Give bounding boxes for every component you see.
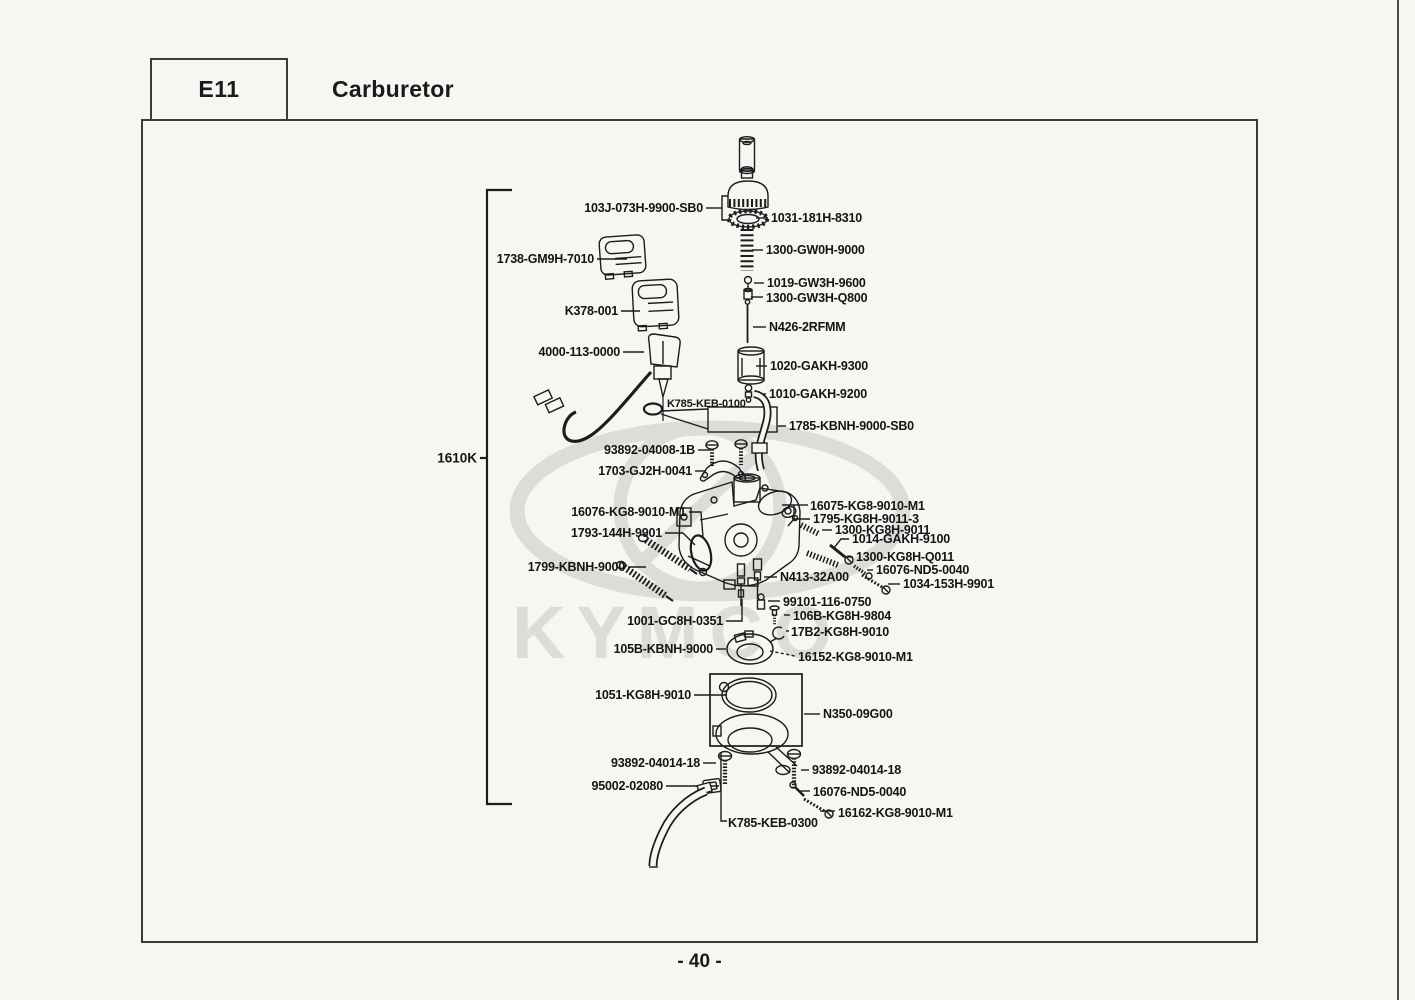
part-label-1793-144h-9901: 1793-144H-9901 bbox=[571, 526, 662, 540]
part-label-16076-nd5-0040-upper: 16076-ND5-0040 bbox=[876, 563, 969, 577]
part-drawing-needle-seat bbox=[744, 289, 752, 300]
part-label-k785-keb-0100: K785-KEB-0100 bbox=[667, 398, 746, 410]
manual-page: E11 Carburetor KYMCO bbox=[0, 0, 1415, 1000]
part-label-1300-gw3h-q800: 1300-GW3H-Q800 bbox=[766, 291, 868, 305]
part-label-16075-kg8-9010-m1: 16075-KG8-9010-M1 bbox=[810, 499, 925, 513]
part-label-1051-kg8h-9010: 1051-KG8H-9010 bbox=[595, 688, 691, 702]
part-label-1034-153h-9901: 1034-153H-9901 bbox=[903, 577, 994, 591]
part-label-93892-04014-18-left: 93892-04014-18 bbox=[611, 756, 700, 770]
part-label-1300-gw0h-9000: 1300-GW0H-9000 bbox=[766, 243, 865, 257]
part-drawing-drain-hose bbox=[649, 782, 712, 867]
part-label-k785-keb-0300: K785-KEB-0300 bbox=[728, 816, 818, 830]
part-label-1300-kg8h-q011: 1300-KG8H-Q011 bbox=[856, 550, 954, 564]
part-label-17b2-kg8h-9010: 17B2-KG8H-9010 bbox=[791, 625, 889, 639]
group-label-1610k: 1610K bbox=[437, 451, 477, 466]
part-label-1785-kbnh-9000-sb0: 1785-KBNH-9000-SB0 bbox=[789, 419, 914, 433]
part-drawing-rubber-boot-upper bbox=[599, 234, 647, 279]
part-label-4000-113-0000: 4000-113-0000 bbox=[538, 345, 620, 359]
part-label-1031-181h-8310: 1031-181H-8310 bbox=[771, 211, 862, 225]
part-label-16162-kg8-9010-m1: 16162-KG8-9010-M1 bbox=[838, 806, 953, 820]
part-label-99101-116-0750: 99101-116-0750 bbox=[783, 595, 872, 609]
part-label-93892-04008-1b: 93892-04008-1B bbox=[604, 443, 695, 457]
part-label-1738-gm9h-7010: 1738-GM9H-7010 bbox=[497, 252, 595, 266]
part-label-105b-kbnh-9000: 105B-KBNH-9000 bbox=[614, 642, 714, 656]
part-drawing-throttle-slide bbox=[738, 347, 764, 384]
part-label-1020-gakh-9300: 1020-GAKH-9300 bbox=[770, 359, 868, 373]
part-label-106b-kg8h-9804: 106B-KG8H-9804 bbox=[793, 609, 891, 623]
part-label-1010-gakh-9200: 1010-GAKH-9200 bbox=[769, 387, 867, 401]
part-label-1799-kbnh-9000: 1799-KBNH-9000 bbox=[528, 560, 625, 574]
part-drawing-rubber-boot-lower bbox=[632, 279, 680, 331]
part-label-k378-001: K378-001 bbox=[565, 304, 619, 318]
part-drawing-lock-ring bbox=[729, 211, 767, 227]
part-label-n426-2rfmm: N426-2RFMM bbox=[769, 320, 846, 334]
part-drawing-needle-clip bbox=[745, 277, 752, 289]
part-label-103j-073h-9900-sb0: 103J-073H-9900-SB0 bbox=[584, 201, 703, 215]
part-drawing-oring-small bbox=[644, 404, 662, 415]
part-label-16076-kg8-9010-m1: 16076-KG8-9010-M1 bbox=[571, 505, 686, 519]
part-drawing-bottom-screws bbox=[719, 750, 801, 789]
part-label-16152-kg8-9010-m1: 16152-KG8-9010-M1 bbox=[798, 650, 913, 664]
part-label-n413-32a00: N413-32A00 bbox=[780, 570, 849, 584]
part-label-1001-gc8h-0351: 1001-GC8H-0351 bbox=[627, 614, 723, 628]
part-drawing-float-chamber bbox=[713, 714, 797, 775]
part-label-1014-gakh-9100: 1014-GAKH-9100 bbox=[852, 532, 950, 546]
part-label-95002-02080: 95002-02080 bbox=[592, 779, 664, 793]
part-label-1703-gj2h-0041: 1703-GJ2H-0041 bbox=[598, 464, 692, 478]
page-number: - 40 - bbox=[141, 951, 1258, 973]
part-drawing-jet-needle bbox=[745, 300, 749, 343]
part-drawing-slide-seat bbox=[745, 385, 751, 402]
part-label-16076-nd5-0040-lower: 16076-ND5-0040 bbox=[813, 785, 906, 799]
part-label-1019-gw3h-9600: 1019-GW3H-9600 bbox=[767, 276, 866, 290]
group-bracket-1610k bbox=[480, 190, 512, 804]
part-drawing-chamber-gasket bbox=[720, 678, 777, 712]
part-label-n350-09g00: N350-09G00 bbox=[823, 707, 893, 721]
exploded-parts-diagram: KYMCO bbox=[0, 0, 1415, 1000]
part-label-93892-04014-18-right: 93892-04014-18 bbox=[812, 763, 901, 777]
